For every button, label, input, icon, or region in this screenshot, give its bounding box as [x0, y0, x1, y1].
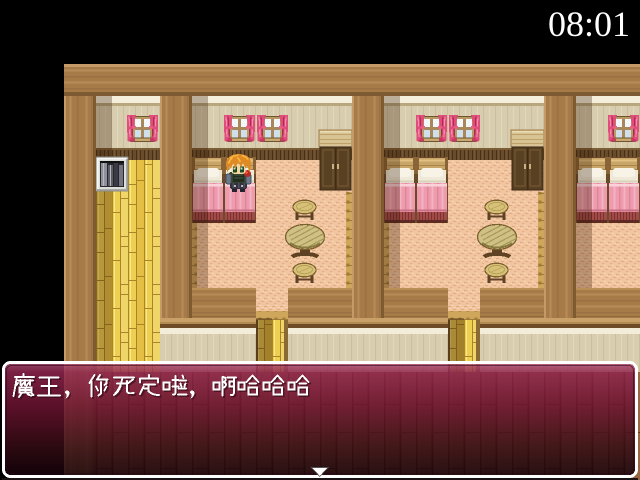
svg-text:08:01: 08:01	[548, 4, 630, 44]
